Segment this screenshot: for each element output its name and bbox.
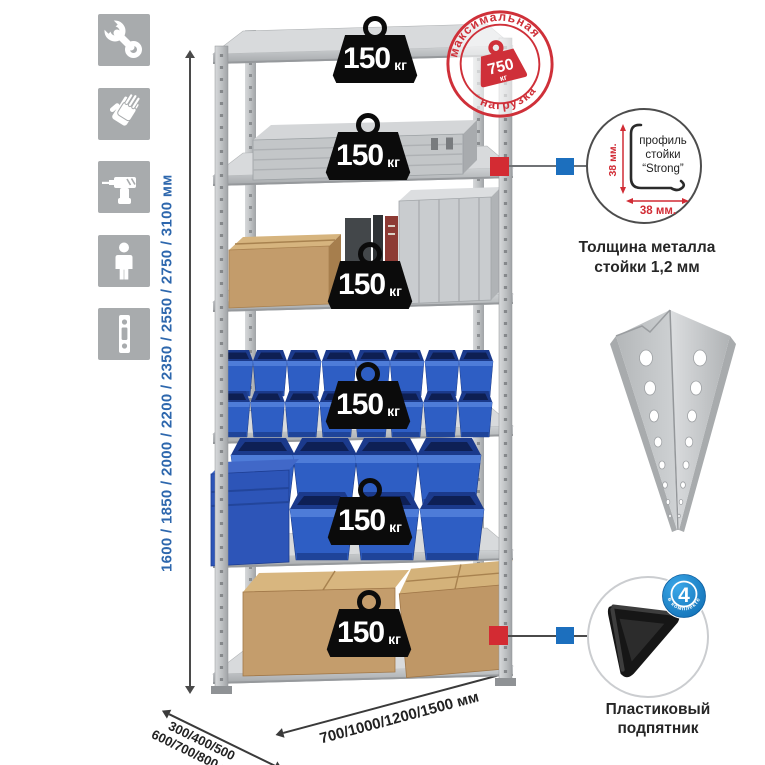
- connector-blue-square-bottom: [556, 627, 574, 644]
- foot-caption: Пластиковый подпятник: [575, 700, 741, 739]
- weight-badge: 150кг: [326, 242, 414, 309]
- profile-label-3: “Strong”: [642, 163, 684, 175]
- profile-dim-horizontal: 38 мм.: [640, 205, 676, 217]
- profile-label-2: стойки: [645, 149, 680, 161]
- angle-post-image: [598, 300, 748, 540]
- included-count-value: 4: [678, 584, 690, 607]
- profile-caption: Толщина металла стойки 1,2 мм: [566, 238, 728, 278]
- connector-line-top: [506, 165, 590, 167]
- connector-red-square-top: [490, 157, 509, 176]
- shelving-product-infographic: 1600 / 1850 / 2000 / 2200 / 2350 / 2550 …: [0, 0, 765, 765]
- weight-badge: 150кг: [324, 362, 412, 429]
- weight-badge: 150кг: [331, 16, 419, 83]
- profile-dim-vertical: 38 мм.: [607, 143, 619, 176]
- height-dimension-line: [189, 58, 191, 686]
- post-profile-icon: [98, 308, 150, 360]
- connector-blue-square-top: [556, 158, 574, 175]
- person-icon: [98, 235, 150, 287]
- weight-badge: 150кг: [326, 478, 414, 545]
- post-profile-detail: 38 мм. 38 мм. профиль стойки “Strong”: [586, 108, 702, 224]
- profile-label-1: профиль: [639, 135, 687, 147]
- included-count-badge: 4 в комплекте: [660, 572, 708, 620]
- weight-badge: 150кг: [325, 590, 413, 657]
- gloves-icon: [98, 88, 150, 140]
- drill-icon: [98, 161, 150, 213]
- connector-red-square-bottom: [489, 626, 508, 645]
- height-dimension-label: 1600 / 1850 / 2000 / 2200 / 2350 / 2550 …: [150, 60, 184, 686]
- weight-badge: 150кг: [324, 113, 412, 180]
- wrench-icon: [98, 14, 150, 66]
- connector-line-bottom: [504, 635, 590, 637]
